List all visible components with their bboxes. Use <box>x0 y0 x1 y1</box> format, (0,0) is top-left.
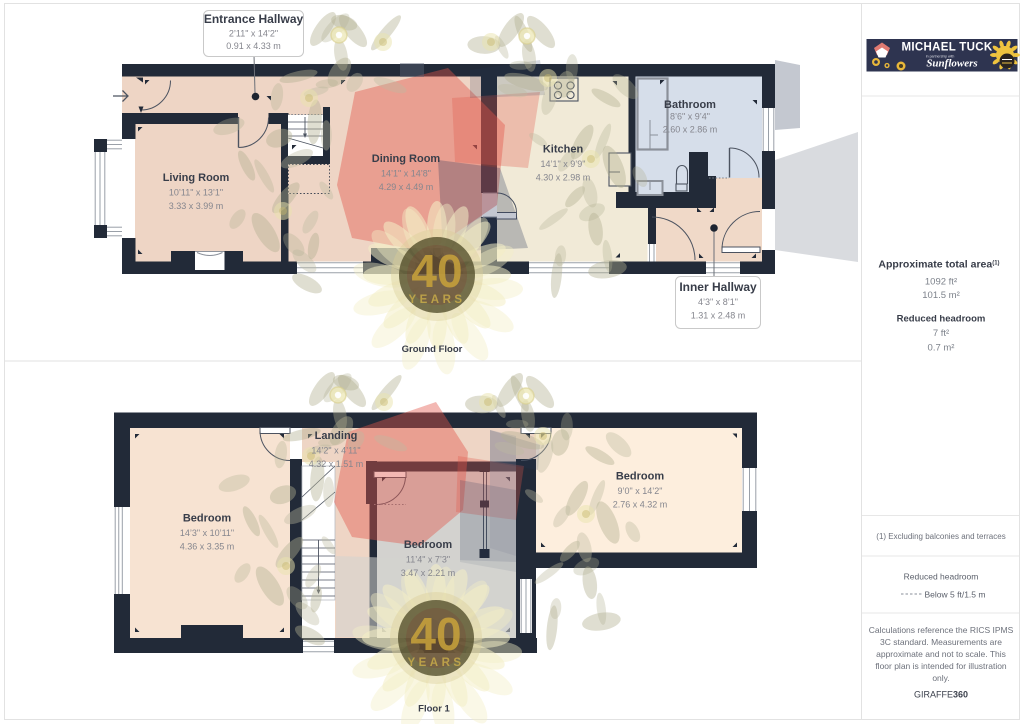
svg-text:40: 40 <box>411 245 462 297</box>
svg-text:Bedroom: Bedroom <box>183 513 232 525</box>
svg-text:14’1" x 9’9": 14’1" x 9’9" <box>541 159 586 169</box>
svg-text:Ground Floor: Ground Floor <box>402 344 463 355</box>
svg-text:floor plan is intended for ill: floor plan is intended for illustration <box>875 661 1007 671</box>
svg-text:YEARS: YEARS <box>408 294 465 306</box>
svg-text:Approximate total area(1): Approximate total area(1) <box>878 259 999 271</box>
svg-text:Below 5 ft/1.5 m: Below 5 ft/1.5 m <box>925 590 986 600</box>
svg-text:7 ft²: 7 ft² <box>933 328 949 339</box>
svg-text:Entrance Hallway: Entrance Hallway <box>204 12 304 26</box>
svg-text:GIRAFFE360: GIRAFFE360 <box>914 690 968 700</box>
svg-text:Floor 1: Floor 1 <box>418 704 450 715</box>
svg-text:(1) Excluding balconies and te: (1) Excluding balconies and terraces <box>876 532 1005 541</box>
svg-text:4’3" x 8’1": 4’3" x 8’1" <box>698 297 738 307</box>
svg-text:4.32 x 1.51 m: 4.32 x 1.51 m <box>309 459 364 469</box>
svg-text:Living Room: Living Room <box>163 172 230 184</box>
svg-text:3C standard. Measurements are: 3C standard. Measurements are <box>880 637 1002 647</box>
svg-text:2.60 x 2.86 m: 2.60 x 2.86 m <box>663 125 718 135</box>
svg-text:4.30 x 2.98 m: 4.30 x 2.98 m <box>536 173 591 183</box>
svg-text:3.33 x 3.99 m: 3.33 x 3.99 m <box>169 201 224 211</box>
svg-text:MICHAEL TUCK: MICHAEL TUCK <box>902 42 993 54</box>
svg-text:1092 ft²: 1092 ft² <box>925 277 957 288</box>
svg-text:Bedroom: Bedroom <box>616 471 665 483</box>
svg-text:Bedroom: Bedroom <box>404 539 453 551</box>
svg-text:8’6" x 9’4": 8’6" x 9’4" <box>670 112 710 122</box>
svg-text:11’4" x 7’3": 11’4" x 7’3" <box>406 555 450 565</box>
svg-text:9’0" x 14’2": 9’0" x 14’2" <box>618 486 663 496</box>
svg-text:4.29 x 4.49 m: 4.29 x 4.49 m <box>379 182 434 192</box>
svg-text:10’11" x 13’1": 10’11" x 13’1" <box>169 188 223 198</box>
svg-text:0.7 m²: 0.7 m² <box>928 343 955 354</box>
svg-text:Sunflowers: Sunflowers <box>926 58 977 70</box>
svg-text:101.5 m²: 101.5 m² <box>922 290 960 301</box>
svg-text:2.76 x 4.32 m: 2.76 x 4.32 m <box>613 500 668 510</box>
svg-text:0.91 x 4.33 m: 0.91 x 4.33 m <box>226 41 281 51</box>
svg-text:4.36 x 3.35 m: 4.36 x 3.35 m <box>180 542 235 552</box>
svg-text:YEARS: YEARS <box>407 657 464 669</box>
svg-text:3.47 x 2.21 m: 3.47 x 2.21 m <box>401 568 456 578</box>
svg-text:14’3" x 10’11": 14’3" x 10’11" <box>180 528 234 538</box>
svg-text:Bathroom: Bathroom <box>664 99 716 111</box>
svg-text:Inner Hallway: Inner Hallway <box>679 280 757 294</box>
svg-text:Reduced headroom: Reduced headroom <box>904 572 979 582</box>
svg-text:14’1" x 14’8": 14’1" x 14’8" <box>381 169 431 179</box>
svg-text:Reduced headroom: Reduced headroom <box>897 314 986 325</box>
svg-text:Landing: Landing <box>315 430 358 442</box>
svg-text:14’2" x 4’11": 14’2" x 4’11" <box>311 446 360 456</box>
svg-text:approximate and not to scale.: approximate and not to scale. This <box>876 649 1006 659</box>
svg-text:1.31 x 2.48 m: 1.31 x 2.48 m <box>691 311 746 321</box>
svg-text:Kitchen: Kitchen <box>543 144 584 156</box>
svg-text:2’11" x 14’2": 2’11" x 14’2" <box>229 29 278 39</box>
svg-text:Dining Room: Dining Room <box>372 153 441 165</box>
svg-text:Calculations reference the RIC: Calculations reference the RICS IPMS <box>869 625 1014 635</box>
svg-text:40: 40 <box>410 608 461 660</box>
svg-text:only.: only. <box>932 673 949 683</box>
